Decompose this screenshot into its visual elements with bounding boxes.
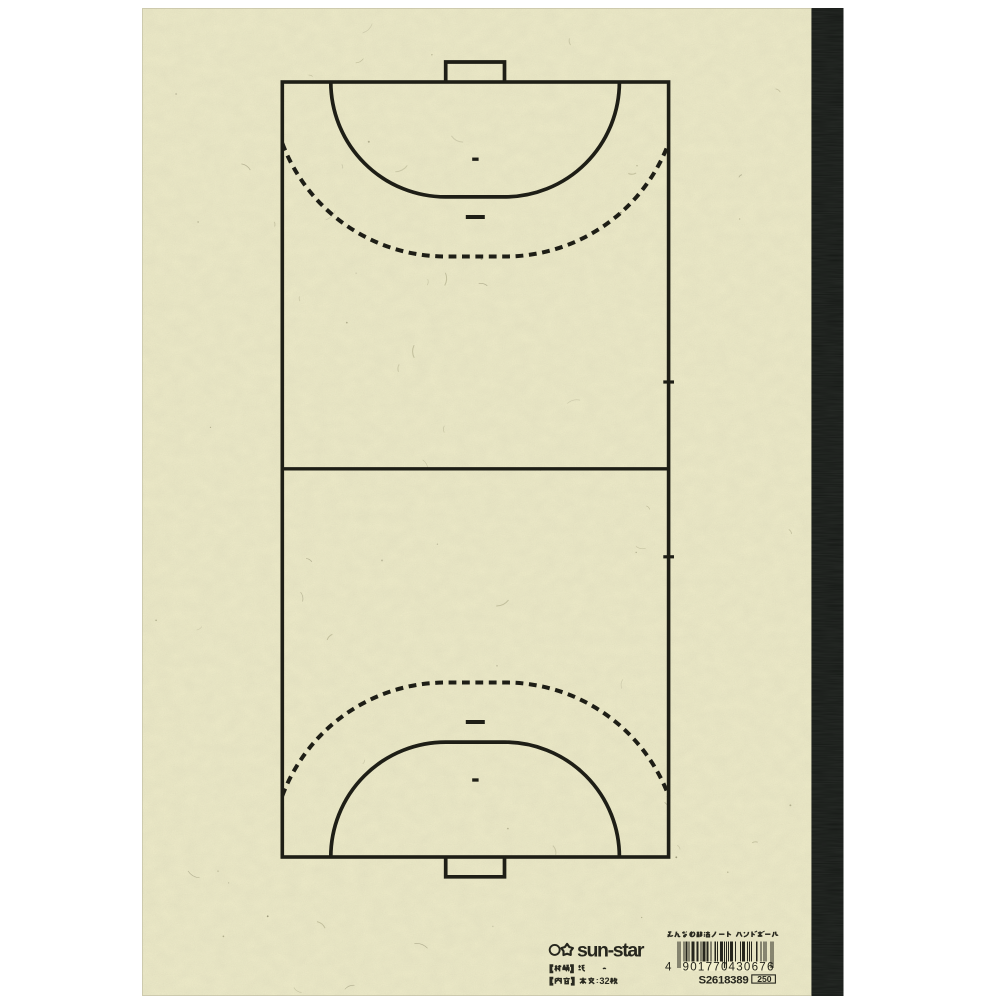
svg-text:250: 250 [757, 974, 772, 984]
svg-text:901770: 901770 [683, 961, 729, 974]
svg-text:4: 4 [665, 961, 673, 974]
svg-text:sun-star: sun-star [577, 939, 645, 961]
svg-text:S2618389: S2618389 [699, 974, 749, 986]
svg-text:32: 32 [599, 976, 609, 986]
svg-text:430676: 430676 [729, 961, 775, 974]
